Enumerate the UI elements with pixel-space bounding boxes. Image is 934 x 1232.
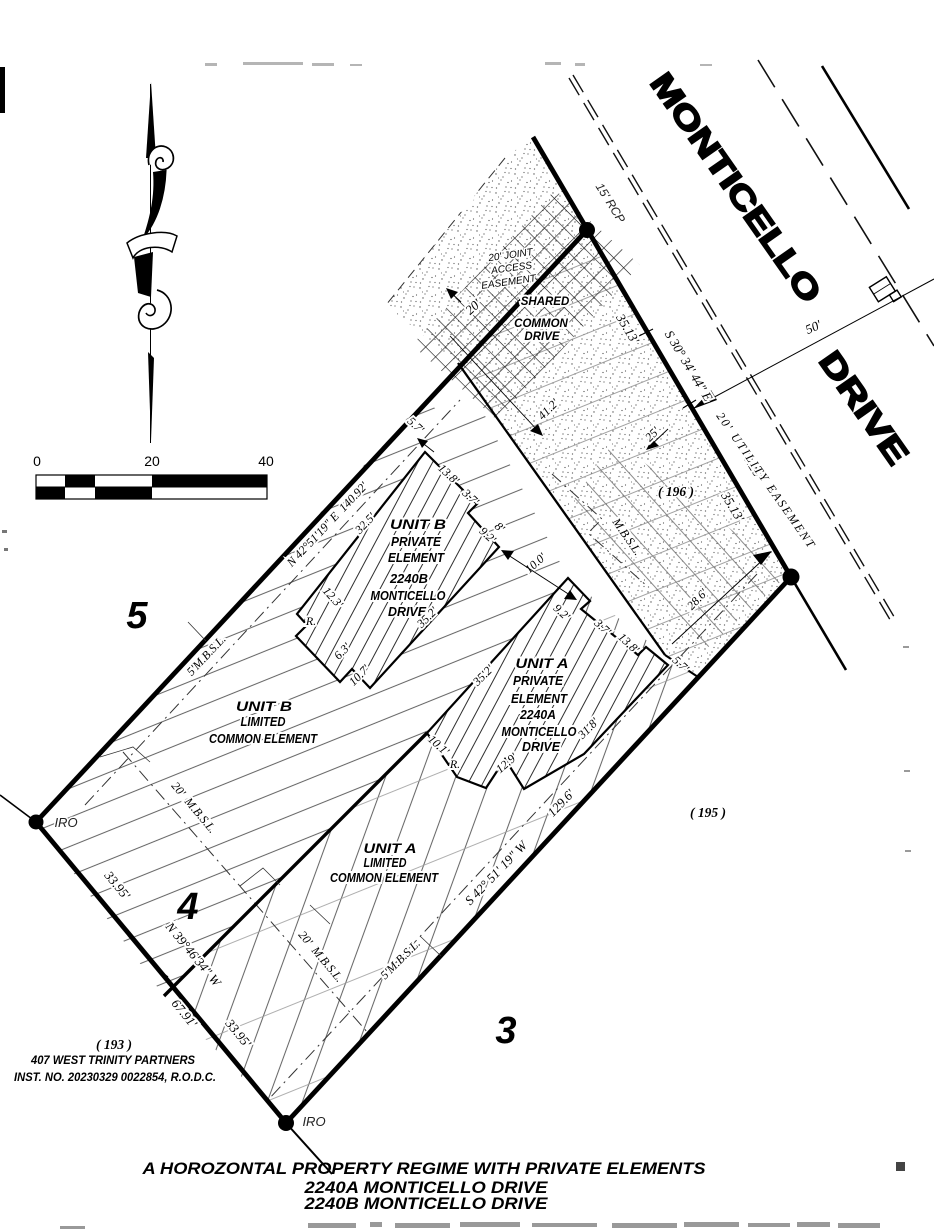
svg-text:R.: R. xyxy=(449,757,460,771)
svg-text:40: 40 xyxy=(258,453,274,469)
svg-text:407 WEST TRINITY PARTNERS: 407 WEST TRINITY PARTNERS xyxy=(30,1055,195,1067)
svg-text:2240B: 2240B xyxy=(389,572,428,586)
svg-text:( 195 ): ( 195 ) xyxy=(690,805,726,820)
svg-text:UNIT B: UNIT B xyxy=(236,698,292,714)
svg-text:DRIVE: DRIVE xyxy=(522,740,561,754)
svg-text:3: 3 xyxy=(495,1010,516,1052)
svg-text:R.: R. xyxy=(305,614,316,628)
svg-text:2240A: 2240A xyxy=(519,708,556,722)
svg-text:PRIVATE: PRIVATE xyxy=(391,535,442,549)
svg-text:PRIVATE: PRIVATE xyxy=(513,674,564,688)
svg-text:UNIT B: UNIT B xyxy=(390,516,446,532)
svg-text:( 196 ): ( 196 ) xyxy=(658,484,694,499)
svg-text:IRO: IRO xyxy=(54,815,77,830)
svg-text:MONTICELLO: MONTICELLO xyxy=(371,589,446,603)
svg-text:COMMON ELEMENT: COMMON ELEMENT xyxy=(209,732,318,746)
svg-text:( 193 ): ( 193 ) xyxy=(96,1037,132,1052)
svg-text:INST. NO. 20230329 0022854, R.: INST. NO. 20230329 0022854, R.O.D.C. xyxy=(14,1072,216,1084)
svg-text:COMMON ELEMENT: COMMON ELEMENT xyxy=(330,871,439,885)
svg-text:ELEMENT: ELEMENT xyxy=(511,692,568,706)
svg-text:UNIT A: UNIT A xyxy=(516,655,569,671)
svg-text:ELEMENT: ELEMENT xyxy=(388,551,445,565)
svg-text:MONTICELLO: MONTICELLO xyxy=(502,725,577,739)
svg-text:20: 20 xyxy=(144,453,160,469)
svg-text:SHARED: SHARED xyxy=(521,296,570,308)
svg-text:2240B MONTICELLO DRIVE: 2240B MONTICELLO DRIVE xyxy=(303,1195,548,1213)
svg-text:5: 5 xyxy=(126,595,148,637)
svg-text:UNIT A: UNIT A xyxy=(364,840,417,856)
svg-text:LIMITED: LIMITED xyxy=(364,856,407,870)
svg-text:COMMON: COMMON xyxy=(514,318,568,330)
svg-text:0: 0 xyxy=(33,453,41,469)
svg-text:IRO: IRO xyxy=(302,1114,325,1129)
svg-text:LIMITED: LIMITED xyxy=(241,715,286,729)
svg-text:DRIVE: DRIVE xyxy=(524,331,559,343)
svg-text:A HOROZONTAL PROPERTY REGIME W: A HOROZONTAL PROPERTY REGIME WITH PRIVAT… xyxy=(141,1159,706,1178)
svg-text:4: 4 xyxy=(176,886,198,928)
